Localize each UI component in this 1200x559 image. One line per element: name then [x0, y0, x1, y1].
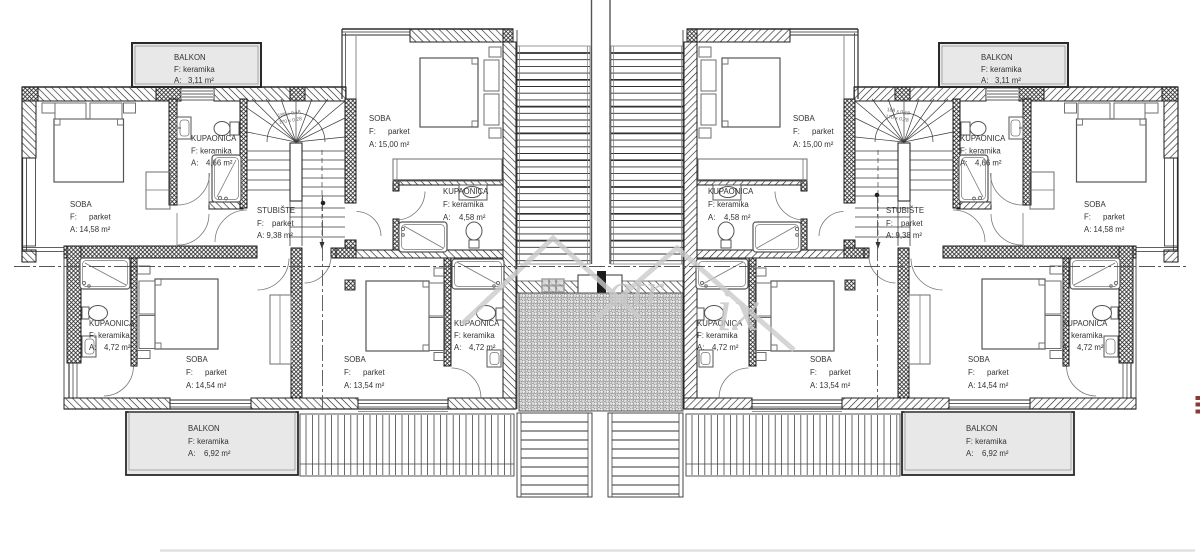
svg-text:F:: F: [369, 127, 376, 136]
svg-text:KUPAONICA: KUPAONICA [454, 319, 500, 328]
svg-text:BALKON: BALKON [981, 53, 1013, 62]
svg-text:F: keramika: F: keramika [1062, 331, 1103, 340]
svg-text:4,58 m²: 4,58 m² [724, 213, 751, 222]
svg-text:parket: parket [1103, 213, 1126, 222]
svg-text:SOBA: SOBA [369, 114, 391, 123]
svg-text:F:: F: [1084, 213, 1091, 222]
svg-text:A: 15,00 m²: A: 15,00 m² [369, 140, 410, 149]
svg-text:KUPAONICA: KUPAONICA [960, 134, 1006, 143]
svg-text:parket: parket [901, 219, 924, 228]
svg-text:A: 14,58 m²: A: 14,58 m² [1084, 225, 1125, 234]
svg-text:STUBIŠTE: STUBIŠTE [257, 206, 295, 215]
svg-text:parket: parket [812, 127, 835, 136]
svg-text:parket: parket [272, 219, 295, 228]
svg-text:6,92 m²: 6,92 m² [204, 449, 231, 458]
svg-text:SOBA: SOBA [70, 200, 92, 209]
svg-text:A:: A: [966, 449, 973, 458]
svg-text:4,72 m²: 4,72 m² [1077, 343, 1104, 352]
svg-text:6,92 m²: 6,92 m² [982, 449, 1009, 458]
svg-text:A:: A: [697, 343, 704, 352]
svg-text:KUPAONICA: KUPAONICA [191, 134, 237, 143]
svg-text:F:: F: [70, 213, 77, 222]
svg-text:A:: A: [188, 449, 195, 458]
svg-text:F:: F: [344, 368, 351, 377]
svg-text:KUPAONICA: KUPAONICA [1062, 319, 1108, 328]
svg-text:F: keramika: F: keramika [191, 147, 232, 156]
svg-text:ix: ix [716, 277, 760, 343]
svg-text:A: 9,38 m²: A: 9,38 m² [257, 231, 293, 240]
svg-text:A:: A: [191, 159, 198, 168]
svg-text:F:: F: [186, 368, 193, 377]
svg-text:F:: F: [793, 127, 800, 136]
svg-text:A:: A: [1062, 343, 1069, 352]
svg-text:BALKON: BALKON [174, 53, 206, 62]
svg-text:4,72 m²: 4,72 m² [712, 343, 739, 352]
svg-text:F: keramika: F: keramika [966, 437, 1007, 446]
svg-text:A: 13,54 m²: A: 13,54 m² [810, 381, 851, 390]
svg-text:A:: A: [708, 213, 715, 222]
svg-text:F: keramika: F: keramika [188, 437, 229, 446]
svg-text:parket: parket [829, 368, 852, 377]
svg-text:A:: A: [443, 213, 450, 222]
svg-text:parket: parket [205, 368, 228, 377]
svg-text:F: keramika: F: keramika [443, 200, 484, 209]
svg-text:SOBA: SOBA [186, 355, 208, 364]
svg-text:SOBA: SOBA [1084, 200, 1106, 209]
svg-text:SOBA: SOBA [810, 355, 832, 364]
svg-text:F:: F: [810, 368, 817, 377]
svg-text:F: keramika: F: keramika [89, 331, 130, 340]
svg-text:A: 13,54 m²: A: 13,54 m² [344, 381, 385, 390]
svg-text:F: keramika: F: keramika [708, 200, 749, 209]
svg-text:F: keramika: F: keramika [174, 65, 215, 74]
svg-text:BALKON: BALKON [966, 424, 998, 433]
svg-text:KUPAONICA: KUPAONICA [708, 187, 754, 196]
svg-text:A: 14,54 m²: A: 14,54 m² [968, 381, 1009, 390]
svg-text:atr: atr [608, 264, 664, 317]
svg-text:SOBA: SOBA [344, 355, 366, 364]
svg-text:4,66 m²: 4,66 m² [975, 159, 1002, 168]
svg-text:parket: parket [89, 213, 112, 222]
svg-text:A:: A: [981, 76, 988, 85]
svg-text:A: 15,00 m²: A: 15,00 m² [793, 140, 834, 149]
svg-text:F: keramika: F: keramika [454, 331, 495, 340]
svg-text:4,58 m²: 4,58 m² [459, 213, 486, 222]
svg-text:A:: A: [89, 343, 96, 352]
svg-text:A: 14,54 m²: A: 14,54 m² [186, 381, 227, 390]
svg-text:BALKON: BALKON [188, 424, 220, 433]
svg-text:3,11 m²: 3,11 m² [995, 76, 1021, 85]
svg-text:A: 9,38 m²: A: 9,38 m² [886, 231, 922, 240]
svg-text:parket: parket [987, 368, 1010, 377]
svg-text:4,66 m²: 4,66 m² [206, 159, 233, 168]
svg-text:3,11 m²: 3,11 m² [188, 76, 214, 85]
svg-text:A:: A: [960, 159, 967, 168]
svg-text:F: keramika: F: keramika [960, 147, 1001, 156]
svg-text:F:: F: [886, 219, 893, 228]
svg-text:KUPAONICA: KUPAONICA [443, 187, 489, 196]
svg-text:STUBIŠTE: STUBIŠTE [886, 206, 924, 215]
svg-text:A:: A: [454, 343, 461, 352]
svg-text:SOBA: SOBA [793, 114, 815, 123]
svg-text:F:: F: [257, 219, 264, 228]
svg-text:SOBA: SOBA [968, 355, 990, 364]
svg-text:4,72 m²: 4,72 m² [104, 343, 131, 352]
svg-text:F: keramika: F: keramika [981, 65, 1022, 74]
svg-text:parket: parket [388, 127, 411, 136]
svg-text:A: 14,58 m²: A: 14,58 m² [70, 225, 111, 234]
svg-text:KUPAONICA: KUPAONICA [89, 319, 135, 328]
svg-text:parket: parket [363, 368, 386, 377]
svg-text:A:: A: [174, 76, 181, 85]
svg-text:4,72 m²: 4,72 m² [469, 343, 496, 352]
svg-text:F:: F: [968, 368, 975, 377]
